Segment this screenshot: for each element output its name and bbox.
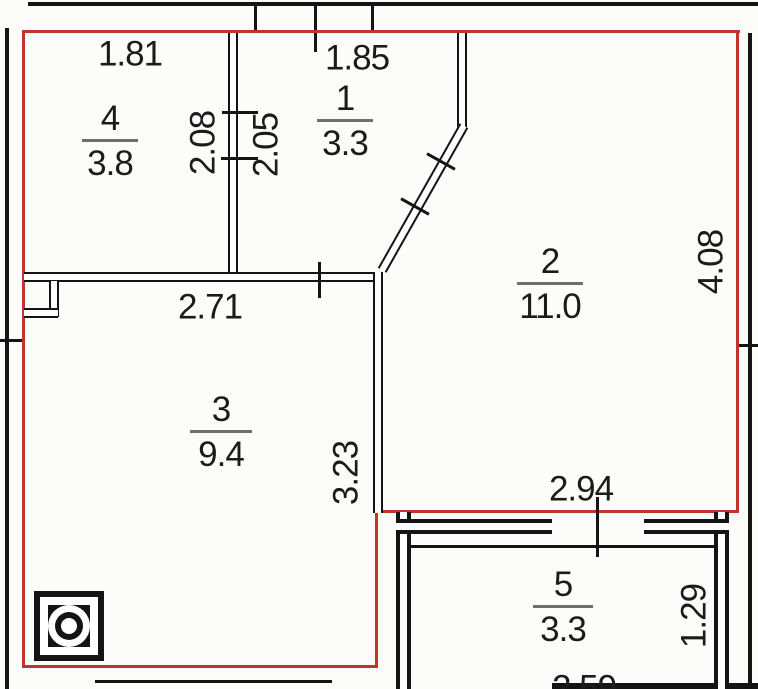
balcony-wall-left: [396, 512, 411, 689]
room-1-number: 1: [336, 81, 354, 116]
dim-label-1-29: 1.29: [677, 584, 712, 648]
tick-top-1: [254, 4, 257, 32]
room-2-divider: [517, 282, 583, 285]
room-label-4: 4 3.8: [82, 101, 138, 181]
balcony-wall-top-right: [644, 519, 729, 534]
niche-wall-horizontal: [24, 308, 58, 318]
room-3-area: 9.4: [198, 437, 244, 472]
room-4-area: 3.8: [87, 146, 133, 181]
outline-top: [22, 30, 740, 33]
ventilation-shaft-icon: [34, 591, 104, 661]
outline-mid-horizontal: [375, 510, 739, 513]
dim-label-1-85: 1.85: [325, 41, 389, 76]
room-label-3: 3 9.4: [190, 392, 252, 472]
dim-label-2-05: 2.05: [249, 113, 284, 177]
outline-right: [736, 30, 739, 513]
room-1-divider: [317, 119, 373, 122]
wall-room3-right: [373, 272, 383, 513]
wall-outer-bottom-left: [95, 680, 332, 683]
dim-label-2-94: 2.94: [549, 472, 613, 507]
balcony-wall-top-left: [396, 519, 552, 534]
tick-outer-right: [737, 344, 758, 347]
wall-hall-top: [24, 272, 379, 282]
outline-left: [22, 30, 25, 668]
floor-plan: 1.81 1.85 2.08 2.05 2.71 4.08 3.23 2.94 …: [0, 0, 758, 689]
dim-label-4-08: 4.08: [694, 230, 729, 294]
dim-label-2-08: 2.08: [186, 111, 221, 175]
balcony-wall-right: [714, 512, 729, 689]
room-1-area: 3.3: [322, 126, 368, 161]
room-2-area: 11.0: [519, 289, 581, 324]
tick-271: [318, 262, 321, 298]
wall-outer-right: [748, 33, 752, 689]
outline-mid-vertical: [375, 510, 378, 668]
dim-label-1-81: 1.81: [98, 37, 162, 72]
room-4-divider: [82, 139, 138, 142]
room-3-divider: [190, 430, 252, 433]
room-4-number: 4: [101, 101, 119, 136]
room-label-2: 2 11.0: [517, 244, 583, 324]
tick-top-3: [371, 4, 374, 32]
wall-outer-top: [28, 2, 758, 6]
tick-top-2: [314, 4, 317, 52]
wall-room1-room2-diagonal: [378, 123, 468, 272]
outline-bottom: [22, 665, 378, 668]
room-2-number: 2: [541, 244, 559, 279]
room-5-divider: [533, 605, 593, 608]
dim-label-2-59: 2.59: [552, 671, 616, 689]
tick-outer-left: [0, 339, 24, 342]
wall-room1-room2-vertical: [457, 33, 467, 130]
room-5-area: 3.3: [540, 612, 586, 647]
balcony-inner-face: [408, 545, 718, 548]
room-label-5: 5 3.3: [533, 567, 593, 647]
room-3-number: 3: [212, 392, 230, 427]
dim-label-3-23: 3.23: [329, 441, 364, 505]
dim-label-2-71: 2.71: [178, 290, 242, 325]
room-5-number: 5: [554, 567, 572, 602]
room-label-1: 1 3.3: [317, 81, 373, 161]
wall-outer-left: [5, 28, 9, 689]
